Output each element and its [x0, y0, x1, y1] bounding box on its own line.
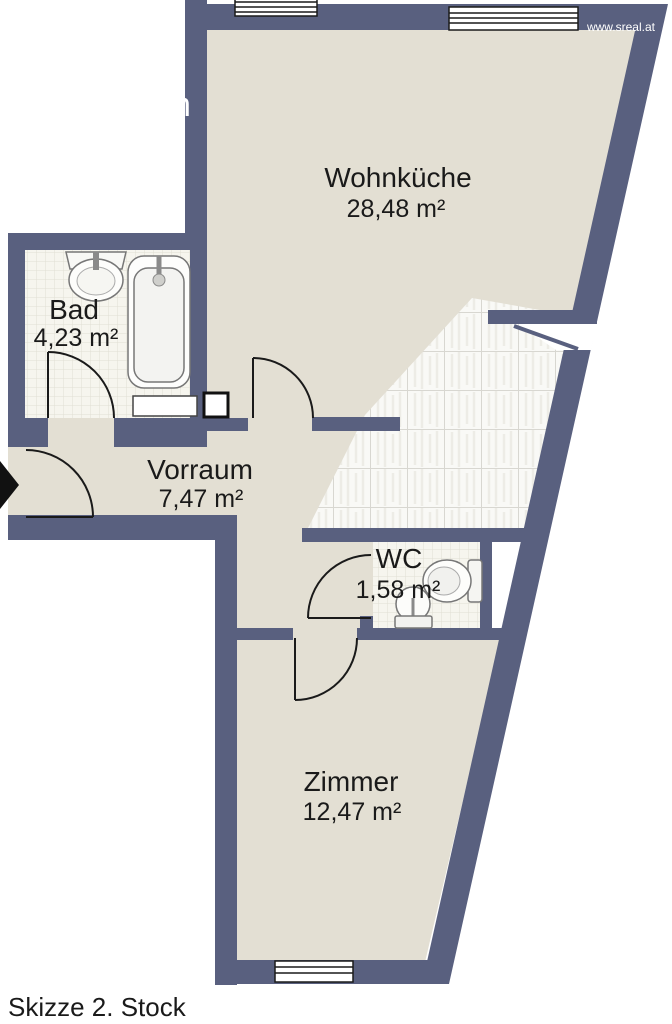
window-top-1 [235, 0, 317, 16]
wall-vorraum-north-right [312, 417, 400, 431]
floor-plan-svg: Wohnküche 28,48 m² Bad 4,23 m² Vorraum 7… [0, 0, 672, 1024]
wall-zimmer-west [215, 515, 237, 985]
room-label-wohnkueche: Wohnküche [324, 162, 471, 193]
room-label-bad: Bad [49, 294, 99, 325]
footer-label: Skizze 2. Stock [8, 992, 187, 1022]
room-label-wc: WC [376, 543, 423, 574]
bad-doorway-floor [48, 418, 114, 447]
wall-zimmer-north-left [237, 628, 293, 640]
watermark-sreal: www.sreal.at [586, 20, 656, 34]
room-area-zimmer: 12,47 m² [303, 798, 402, 826]
wall-stub-east [488, 310, 597, 324]
wall-wc-top [302, 528, 532, 542]
room-area-vorraum: 7,47 m² [159, 485, 244, 513]
wall-vorraum-north-left [207, 418, 248, 431]
wall-bad-bottom-right [114, 418, 207, 447]
wall-bad-top [8, 233, 207, 250]
bad-niche [133, 396, 197, 416]
bathtub [128, 256, 190, 388]
chimney-box [204, 393, 228, 417]
wall-west-upper [8, 233, 25, 433]
wall-vorraum-south [8, 515, 237, 540]
room-area-wohnkueche: 28,48 m² [347, 195, 446, 223]
room-area-wc: 1,58 m² [356, 576, 441, 604]
room-label-zimmer: Zimmer [304, 766, 399, 797]
window-top-2 [449, 7, 578, 30]
window-bottom [275, 961, 353, 982]
wall-zimmer-north-right [357, 628, 502, 640]
wall-bad-bottom-left [8, 418, 48, 447]
room-area-bad: 4,23 m² [34, 324, 119, 352]
room-label-vorraum: Vorraum [147, 454, 253, 485]
watermark-fragment: n [172, 86, 191, 124]
wall-wohnkueche-left [185, 0, 207, 250]
